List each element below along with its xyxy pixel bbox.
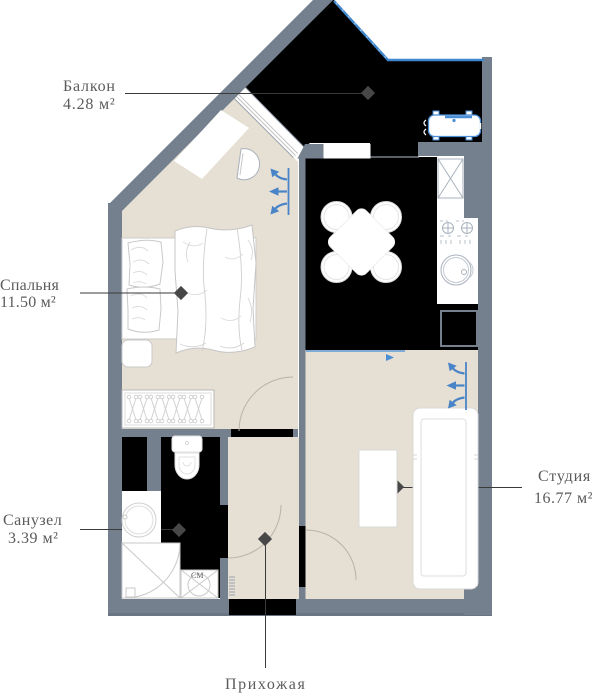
svg-text:Студия: Студия xyxy=(538,468,591,485)
svg-text:Спальня: Спальня xyxy=(0,277,60,294)
svg-text:16.77 м²: 16.77 м² xyxy=(534,490,593,507)
svg-text:3.39 м²: 3.39 м² xyxy=(8,530,58,547)
svg-text:Санузел: Санузел xyxy=(3,512,62,529)
svg-text:Прихожая: Прихожая xyxy=(225,676,306,693)
svg-text:11.50 м²: 11.50 м² xyxy=(0,294,56,311)
svg-text:Балкон: Балкон xyxy=(63,78,116,95)
svg-text:СМ: СМ xyxy=(191,571,203,580)
svg-text:4.28 м²: 4.28 м² xyxy=(63,96,116,113)
